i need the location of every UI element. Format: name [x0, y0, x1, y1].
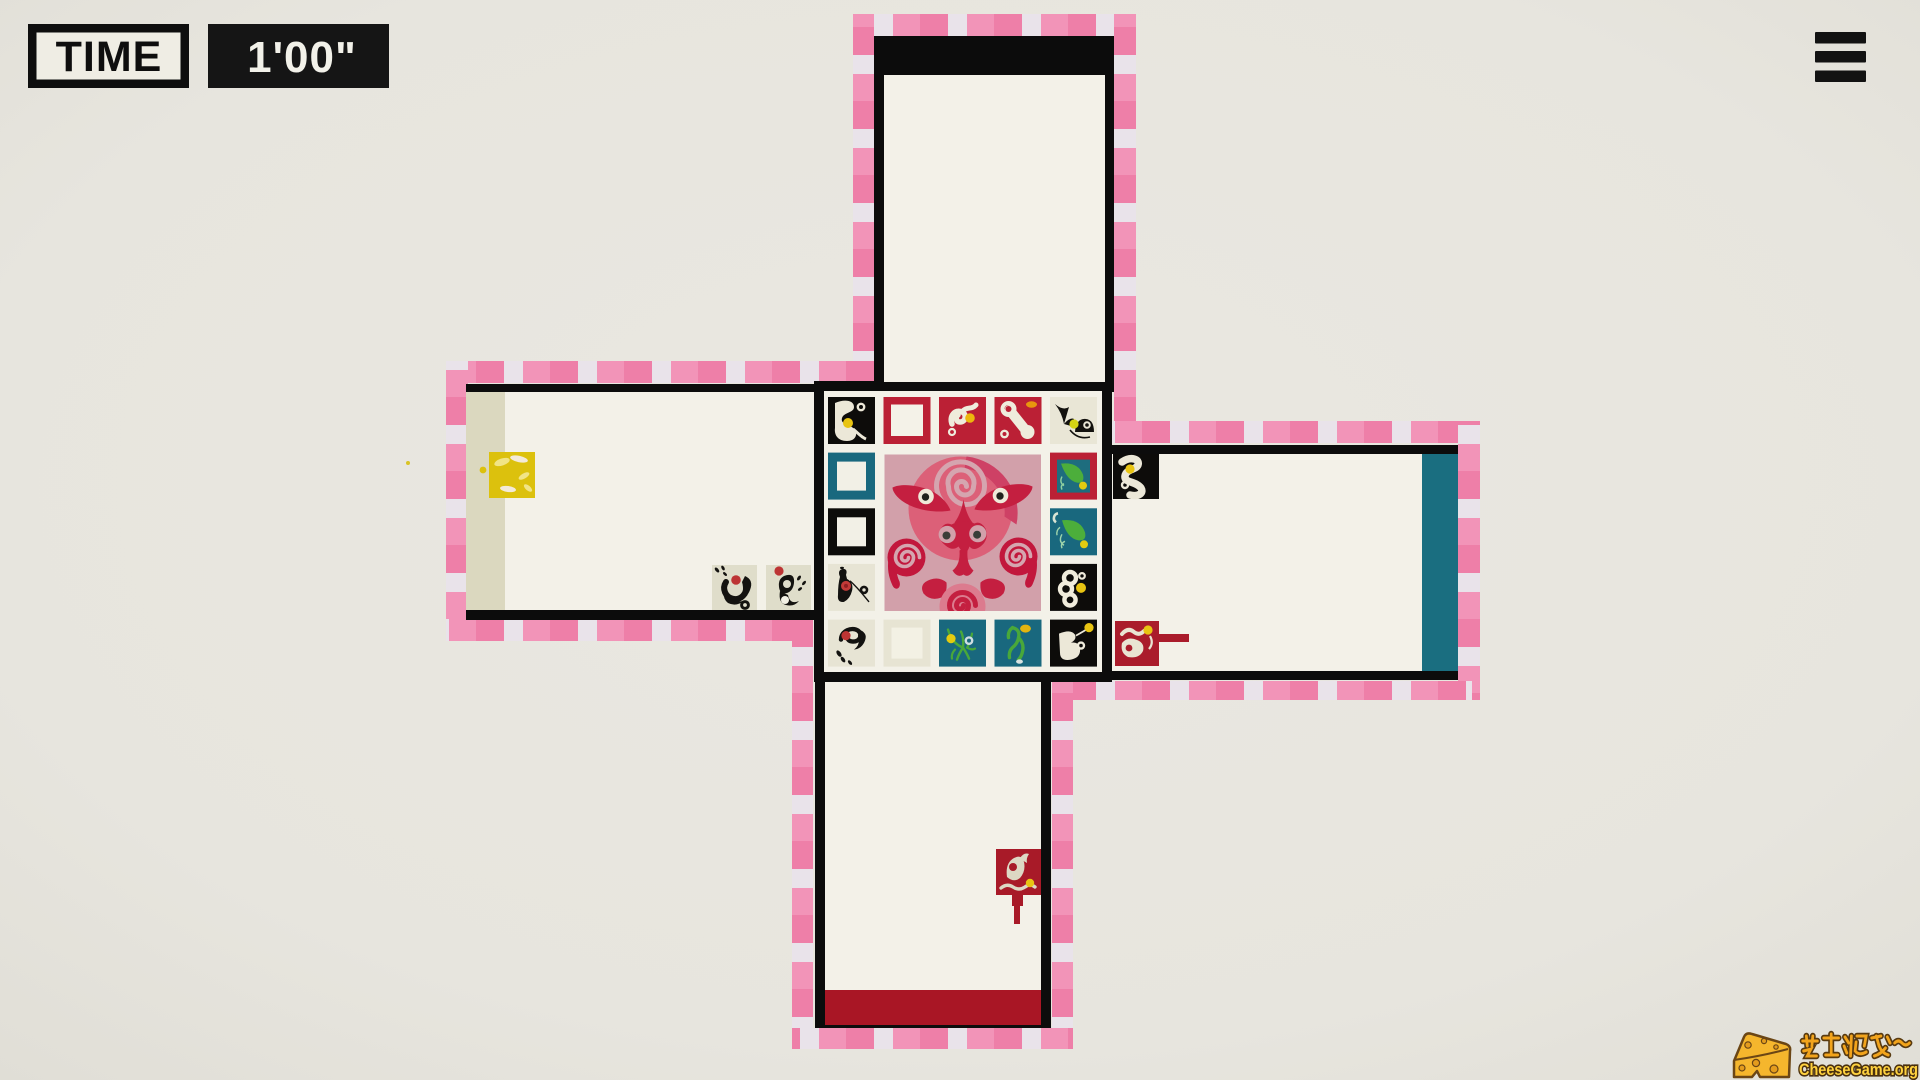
svg-text:1'00": 1'00" [247, 33, 357, 82]
svg-text:CheeseGame.org: CheeseGame.org [1799, 1060, 1918, 1079]
svg-text:TIME: TIME [56, 33, 163, 81]
